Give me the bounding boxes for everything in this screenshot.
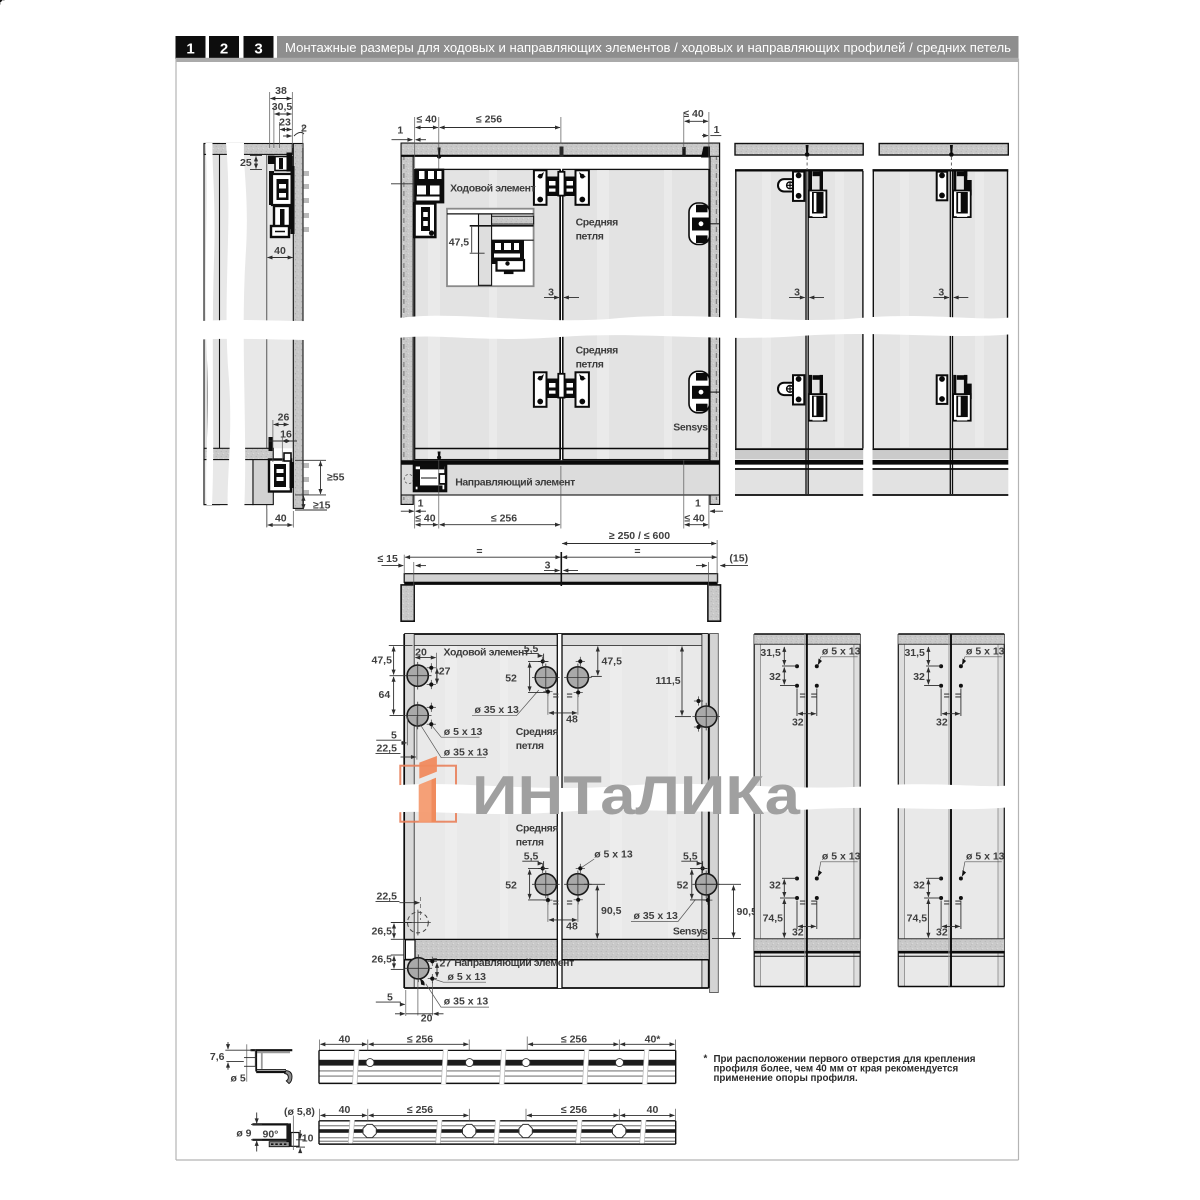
- svg-text:Направляющий элемент: Направляющий элемент: [454, 957, 574, 969]
- svg-text:40*: 40*: [645, 1033, 662, 1045]
- svg-text:23: 23: [279, 117, 291, 129]
- svg-text:=: =: [553, 690, 559, 702]
- svg-text:1: 1: [418, 498, 424, 510]
- svg-text:32: 32: [792, 717, 804, 729]
- svg-text:Средняя: Средняя: [576, 217, 619, 229]
- svg-text:≤ 256: ≤ 256: [561, 1033, 587, 1045]
- svg-text:1: 1: [695, 498, 701, 510]
- svg-text:64: 64: [379, 689, 391, 701]
- svg-text:22,5: 22,5: [377, 743, 398, 755]
- svg-text:2: 2: [220, 41, 228, 58]
- svg-text:52: 52: [505, 879, 517, 891]
- svg-text:≤ 256: ≤ 256: [407, 1033, 433, 1045]
- svg-text:≤ 40: ≤ 40: [415, 513, 436, 525]
- svg-text:16: 16: [280, 429, 292, 441]
- svg-text:40: 40: [339, 1033, 351, 1045]
- svg-text:26: 26: [278, 412, 290, 424]
- svg-text:=: =: [476, 546, 482, 558]
- svg-text:5: 5: [387, 991, 393, 1003]
- svg-text:ø 5 x 13: ø 5 x 13: [594, 849, 633, 861]
- svg-text:ø 5 x 13: ø 5 x 13: [444, 726, 483, 738]
- svg-text:=: =: [800, 690, 806, 702]
- svg-text:≤ 40: ≤ 40: [684, 513, 705, 525]
- svg-text:3: 3: [938, 287, 944, 299]
- svg-text:32: 32: [769, 880, 781, 892]
- svg-text:применение опоры профиля.: применение опоры профиля.: [714, 1073, 858, 1084]
- svg-text:≤ 256: ≤ 256: [407, 1104, 433, 1116]
- svg-text:(ø 5,8): (ø 5,8): [284, 1106, 315, 1118]
- svg-text:Средняя: Средняя: [576, 345, 619, 357]
- svg-text:Направляющий элемент: Направляющий элемент: [455, 477, 575, 489]
- svg-text:38: 38: [275, 85, 287, 97]
- svg-text:32: 32: [792, 926, 804, 938]
- svg-text:петля: петля: [576, 231, 604, 243]
- svg-text:40: 40: [339, 1104, 351, 1116]
- svg-text:≤ 256: ≤ 256: [561, 1104, 587, 1116]
- svg-text:26,5: 26,5: [372, 925, 393, 937]
- svg-text:47,5: 47,5: [449, 237, 470, 249]
- svg-text:≥55: ≥55: [327, 472, 345, 484]
- svg-text:48: 48: [566, 920, 578, 932]
- svg-text:31,5: 31,5: [760, 647, 781, 659]
- svg-text:ø 5 x 13: ø 5 x 13: [448, 971, 487, 983]
- svg-text:111,5: 111,5: [656, 675, 681, 687]
- svg-text:=: =: [800, 897, 806, 909]
- svg-text:40: 40: [647, 1104, 659, 1116]
- svg-text:Монтажные размеры для ходовых: Монтажные размеры для ходовых и направля…: [285, 40, 1011, 55]
- svg-text:=: =: [567, 690, 573, 702]
- svg-text:*: *: [704, 1054, 708, 1065]
- svg-text:20: 20: [421, 1012, 433, 1024]
- svg-text:1: 1: [186, 41, 194, 58]
- svg-text:3: 3: [545, 560, 551, 572]
- svg-text:петля: петля: [516, 740, 544, 752]
- svg-text:≥15: ≥15: [313, 500, 331, 512]
- svg-text:ø 5 x 13: ø 5 x 13: [822, 851, 861, 863]
- svg-text:ø 5: ø 5: [231, 1073, 246, 1085]
- svg-text:≥ 250 / ≤ 600: ≥ 250 / ≤ 600: [609, 530, 670, 542]
- svg-text:74,5: 74,5: [763, 912, 784, 924]
- svg-text:ø 9: ø 9: [236, 1128, 251, 1140]
- svg-text:≤ 15: ≤ 15: [378, 553, 399, 565]
- svg-text:ø 35 x 13: ø 35 x 13: [634, 910, 679, 922]
- svg-text:5,5: 5,5: [524, 850, 539, 862]
- svg-text:Ходовой элемент: Ходовой элемент: [450, 183, 535, 195]
- svg-text:=: =: [634, 546, 640, 558]
- svg-text:47,5: 47,5: [372, 655, 393, 667]
- svg-text:Sensys: Sensys: [673, 422, 708, 434]
- svg-text:Ходовой элемент: Ходовой элемент: [444, 647, 529, 659]
- svg-text:1: 1: [714, 124, 720, 136]
- svg-text:90,5: 90,5: [601, 905, 622, 917]
- svg-text:Средняя: Средняя: [516, 726, 559, 738]
- svg-text:40: 40: [274, 245, 286, 257]
- svg-text:47,5: 47,5: [602, 656, 623, 668]
- svg-text:петля: петля: [576, 359, 604, 371]
- svg-text:=: =: [567, 897, 573, 909]
- svg-text:27: 27: [440, 958, 452, 970]
- svg-text:=: =: [811, 690, 817, 702]
- svg-text:3: 3: [548, 287, 554, 299]
- svg-text:=: =: [811, 897, 817, 909]
- svg-text:ИНТаЛИКа: ИНТаЛИКа: [472, 764, 800, 826]
- svg-text:3: 3: [794, 287, 800, 299]
- svg-text:≤ 40: ≤ 40: [417, 114, 438, 126]
- svg-text:52: 52: [505, 673, 517, 685]
- svg-text:ø 35 x 13: ø 35 x 13: [444, 746, 489, 758]
- svg-text:ø 5 x 13: ø 5 x 13: [822, 646, 861, 658]
- svg-text:=: =: [553, 897, 559, 909]
- svg-text:≤ 256: ≤ 256: [476, 114, 502, 126]
- svg-text:5,5: 5,5: [683, 850, 698, 862]
- svg-text:32: 32: [769, 671, 781, 683]
- svg-text:20: 20: [415, 646, 427, 658]
- svg-text:26,5: 26,5: [372, 954, 393, 966]
- svg-text:25: 25: [240, 157, 252, 169]
- svg-text:30,5: 30,5: [272, 101, 293, 113]
- svg-text:петля: петля: [516, 836, 544, 848]
- svg-text:90°: 90°: [263, 1128, 279, 1140]
- svg-text:ø 35 x 13: ø 35 x 13: [444, 996, 489, 1008]
- svg-text:27: 27: [439, 665, 451, 677]
- svg-text:22,5: 22,5: [377, 891, 398, 903]
- svg-text:3: 3: [254, 41, 262, 58]
- svg-text:(15): (15): [729, 553, 748, 565]
- svg-text:48: 48: [566, 714, 578, 726]
- svg-text:≤ 256: ≤ 256: [491, 513, 517, 525]
- svg-text:1: 1: [397, 125, 403, 137]
- svg-text:7,6: 7,6: [210, 1051, 225, 1063]
- svg-text:Sensys: Sensys: [673, 926, 708, 938]
- svg-text:ø 35 x 13: ø 35 x 13: [475, 704, 520, 716]
- svg-text:10: 10: [302, 1133, 314, 1145]
- svg-text:52: 52: [677, 879, 689, 891]
- svg-text:40: 40: [275, 513, 287, 525]
- svg-text:≤ 40: ≤ 40: [683, 108, 704, 120]
